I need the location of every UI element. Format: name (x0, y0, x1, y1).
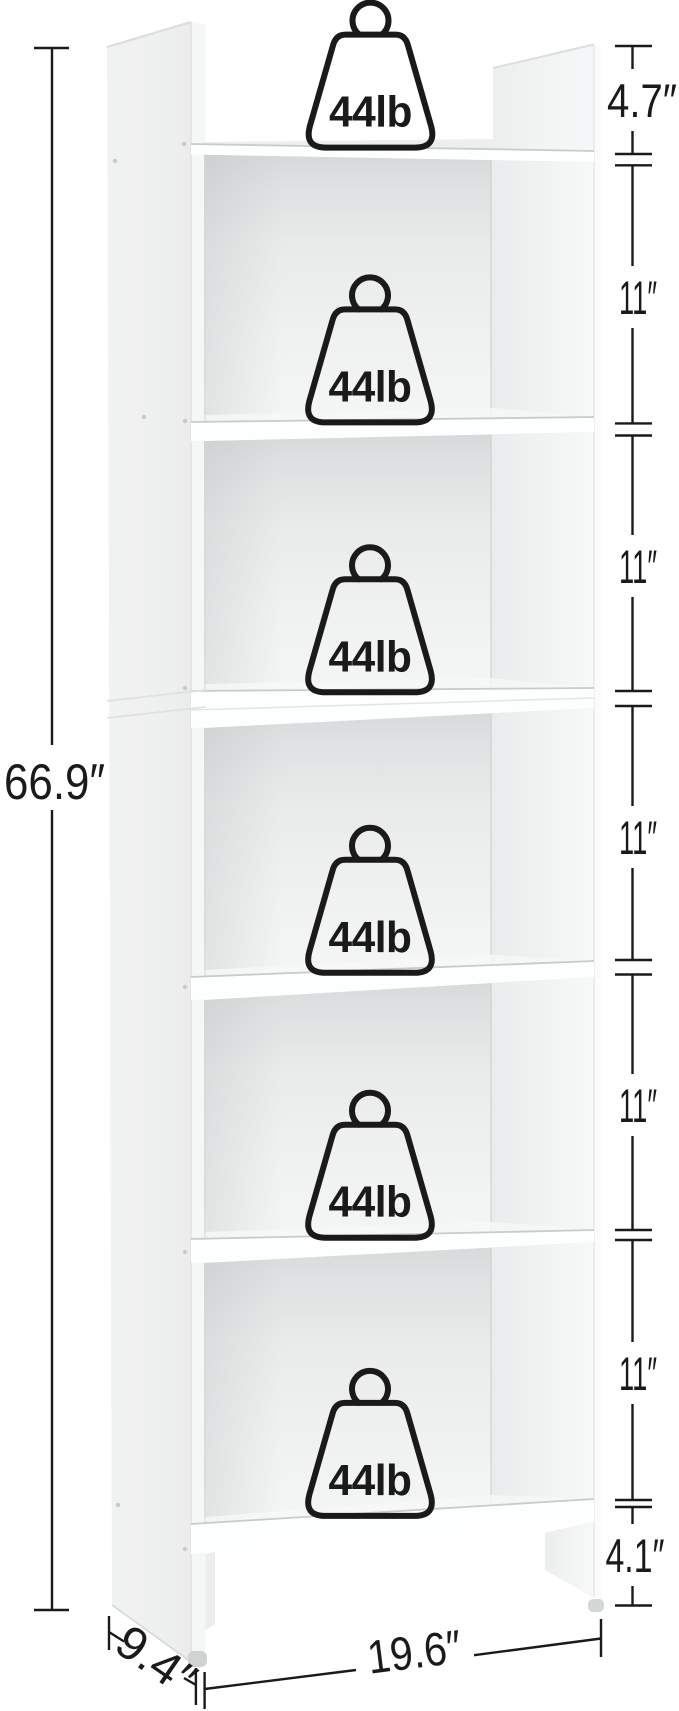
svg-text:4.7″: 4.7″ (607, 74, 677, 127)
svg-text:11″: 11″ (619, 271, 657, 324)
svg-text:11″: 11″ (619, 1347, 657, 1400)
svg-text:11″: 11″ (619, 1079, 657, 1132)
svg-text:66.9″: 66.9″ (4, 754, 105, 810)
svg-text:4.1″: 4.1″ (606, 1529, 665, 1582)
svg-text:11″: 11″ (619, 811, 657, 864)
svg-text:11″: 11″ (619, 540, 657, 593)
